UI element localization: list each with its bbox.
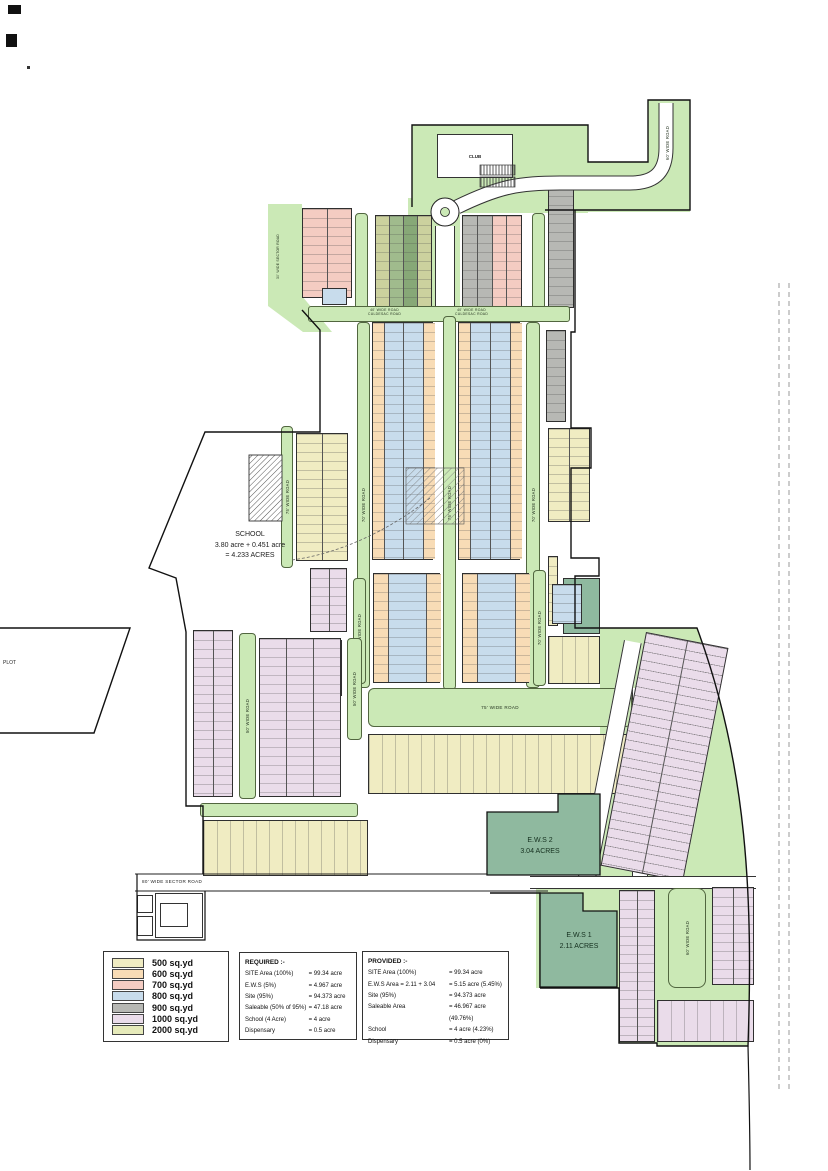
plot-column	[374, 574, 388, 682]
plot-column	[260, 639, 286, 796]
corner-mark	[8, 5, 21, 14]
plot-column	[426, 574, 441, 682]
road-strip-vertical: 50' WIDE ROAD	[239, 633, 256, 799]
plot-block-1000	[193, 630, 233, 797]
plot-column	[423, 323, 435, 559]
legend-label: 900 sq.yd	[152, 1003, 193, 1013]
plot-block-500-band	[203, 820, 368, 876]
ews1-label: E.W.S 1 2.11 ACRES	[543, 930, 615, 952]
road-strip-vertical: 70' WIDE ROAD	[533, 570, 546, 686]
table-row: E.W.S (5%)= 4.967 acre	[245, 981, 351, 992]
sector-road-label: 80' WIDE SECTOR ROAD	[142, 879, 202, 884]
legend-swatch-900	[112, 1003, 144, 1013]
plot-block-600-800	[372, 322, 433, 560]
road-strip-vertical	[532, 213, 545, 310]
plot-column	[492, 216, 507, 306]
plot-column	[470, 323, 490, 559]
road-strip-vertical: 60' WIDE ROAD	[660, 108, 674, 178]
road-strip-horizontal	[200, 803, 358, 817]
legend-label: 500 sq.yd	[152, 958, 193, 968]
plot-block-600-800	[462, 573, 529, 683]
required-heading: REQUIRED :-	[245, 957, 351, 969]
plot-block-1000	[712, 887, 754, 985]
road-strip-vertical: 75' WIDE ROAD	[443, 316, 456, 690]
plot-column	[477, 574, 514, 682]
table-row: School (4 Acre)= 4 acre	[245, 1015, 351, 1026]
site-layout-plan: CLUB 40' WIDE ROAD CULDESAC ROAD 40' WID…	[0, 0, 828, 1171]
legend-row: 2000 sq.yd	[112, 1025, 220, 1035]
legend-label: 600 sq.yd	[152, 969, 193, 979]
neighbor-plot-label: PLOT	[3, 660, 16, 666]
legend-swatch-500	[112, 958, 144, 968]
legend-row: 800 sq.yd	[112, 991, 220, 1001]
plot-column	[417, 216, 431, 306]
legend-label: 700 sq.yd	[152, 980, 193, 990]
plot-column	[510, 323, 522, 559]
table-row: Site (95%)= 94.373 acre	[368, 991, 503, 1002]
plot-block-900	[548, 186, 574, 308]
table-row: Dispensary= 0.5 acre (0%)	[368, 1037, 503, 1048]
legend-row: 700 sq.yd	[112, 980, 220, 990]
legend-swatch-700	[112, 980, 144, 990]
road-strip-vertical: 60' WIDE ROAD	[668, 888, 706, 988]
plot-block-2000-900	[375, 215, 432, 307]
road-strip-vertical: 50' WIDE ROAD	[347, 638, 362, 740]
plot-block-1000	[259, 638, 341, 797]
plot-column	[477, 216, 492, 306]
culdesac-road-label: 40' WIDE ROAD CULDESAC ROAD	[368, 308, 401, 316]
plot-block-1000	[310, 568, 347, 632]
plot-block-1000	[619, 890, 655, 1042]
utility-box	[137, 895, 153, 913]
plot-block-600-800	[458, 322, 520, 560]
plot-block-500	[548, 428, 590, 522]
plot-block-500	[548, 636, 600, 684]
plot-column	[376, 216, 389, 306]
table-row: Dispensary= 0.5 acre	[245, 1026, 351, 1037]
plot-column	[459, 323, 470, 559]
plot-column	[403, 323, 423, 559]
plot-column	[403, 216, 417, 306]
club-label: CLUB	[469, 154, 482, 159]
plot-block-500-band	[368, 734, 630, 794]
plot-column	[373, 323, 384, 559]
plot-block-900-700	[462, 215, 522, 307]
club-building: CLUB	[437, 134, 513, 178]
plot-column	[506, 216, 521, 306]
corner-mark	[6, 34, 17, 47]
plot-block-700	[302, 208, 352, 298]
plot-column	[388, 574, 425, 682]
road-white-corridor	[435, 226, 455, 318]
plot-column	[463, 216, 477, 306]
road-strip-horizontal: 75' WIDE ROAD	[368, 688, 632, 727]
corner-mark	[27, 66, 30, 69]
provided-heading: PROVIDED :-	[368, 956, 503, 968]
table-row: E.W.S Area = 2.11 + 3.04= 5.15 acre (5.4…	[368, 980, 503, 991]
legend-swatch-800	[112, 991, 144, 1001]
legend-row: 900 sq.yd	[112, 1003, 220, 1013]
plot-column	[463, 574, 477, 682]
utility-box-inner	[160, 903, 188, 927]
legend: 500 sq.yd 600 sq.yd 700 sq.yd 800 sq.yd …	[103, 951, 229, 1042]
plot-block-800-small	[552, 584, 582, 624]
plot-block-800-small	[322, 288, 347, 305]
legend-swatch-1000	[112, 1014, 144, 1024]
table-row: Saleable Area= 46.967 acre (49.76%)	[368, 1002, 503, 1025]
plot-column	[313, 639, 340, 796]
road-strip-vertical	[355, 213, 368, 310]
ews2-label: E.W.S 2 3.04 ACRES	[490, 835, 590, 857]
school-label: SCHOOL 3.80 acre + 0.451 acre = 4.233 AC…	[198, 530, 302, 562]
plot-block-1000	[657, 1000, 754, 1042]
plot-block-900	[546, 330, 566, 422]
legend-row: 500 sq.yd	[112, 958, 220, 968]
legend-label: 1000 sq.yd	[152, 1014, 198, 1024]
plot-block-600-800	[373, 573, 440, 683]
required-table: REQUIRED :- SITE Area (100%)= 99.34 acre…	[239, 952, 357, 1040]
plot-column	[286, 639, 313, 796]
legend-row: 600 sq.yd	[112, 969, 220, 979]
legend-swatch-600	[112, 969, 144, 979]
plot-block-500	[296, 433, 348, 561]
provided-table: PROVIDED :- SITE Area (100%)= 99.34 acre…	[362, 951, 509, 1040]
legend-label: 800 sq.yd	[152, 991, 193, 1001]
table-row: School= 4 acre (4.23%)	[368, 1025, 503, 1036]
legend-label: 2000 sq.yd	[152, 1025, 198, 1035]
plot-column	[490, 323, 510, 559]
table-row: Saleable (50% of 95%)= 47.18 acre	[245, 1003, 351, 1014]
legend-swatch-2000	[112, 1025, 144, 1035]
road-strip-horizontal	[308, 306, 570, 322]
utility-box	[137, 916, 153, 936]
plot-column	[384, 323, 404, 559]
table-row: SITE Area (100%)= 99.34 acre	[368, 968, 503, 979]
culdesac-road-label: 40' WIDE ROAD CULDESAC ROAD	[455, 308, 488, 316]
road-strip-vertical: 30' WIDE SECTOR ROAD	[270, 212, 286, 300]
plot-column	[515, 574, 530, 682]
table-row: Site (95%)= 94.373 acre	[245, 992, 351, 1003]
table-row: SITE Area (100%)= 99.34 acre	[245, 969, 351, 980]
legend-row: 1000 sq.yd	[112, 1014, 220, 1024]
plot-column	[389, 216, 403, 306]
